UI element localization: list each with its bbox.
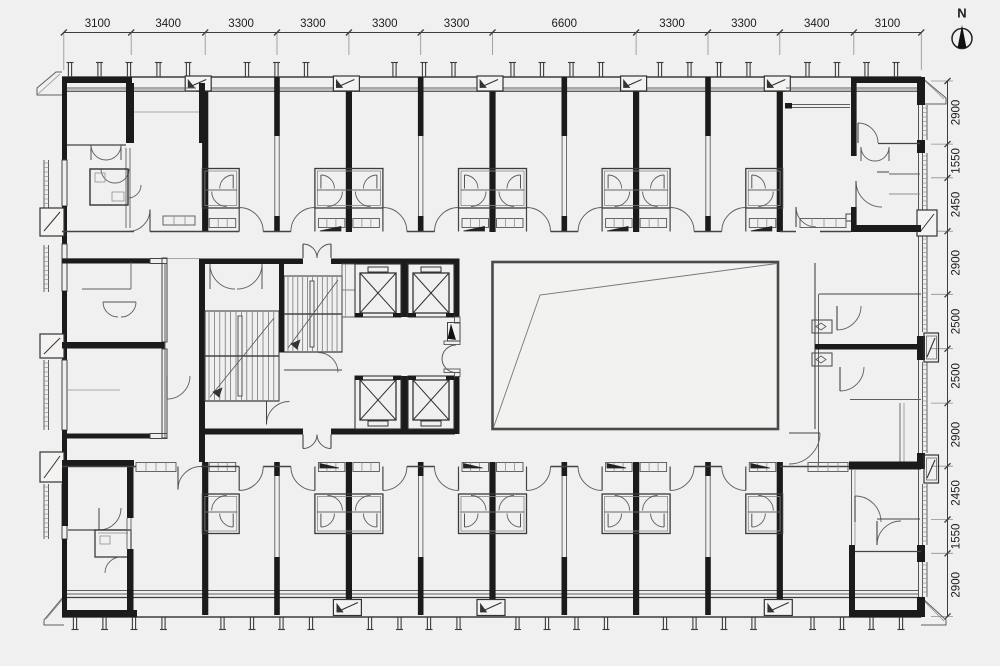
svg-text:2450: 2450 [951,480,963,506]
svg-text:6600: 6600 [552,18,578,30]
svg-text:2900: 2900 [951,250,963,276]
svg-text:2900: 2900 [951,572,963,598]
svg-text:2900: 2900 [951,422,963,448]
svg-text:3300: 3300 [372,18,398,30]
svg-text:2500: 2500 [951,309,963,335]
svg-text:2900: 2900 [951,100,963,126]
svg-text:3100: 3100 [875,18,901,30]
svg-text:2450: 2450 [951,192,963,218]
svg-text:3100: 3100 [85,18,111,30]
svg-text:3300: 3300 [731,18,757,30]
svg-text:3400: 3400 [155,18,181,30]
svg-text:2500: 2500 [951,363,963,389]
svg-text:1550: 1550 [951,148,963,174]
svg-text:3300: 3300 [228,18,254,30]
svg-text:3300: 3300 [659,18,685,30]
svg-text:3400: 3400 [804,18,830,30]
svg-text:3300: 3300 [444,18,470,30]
svg-text:N: N [957,6,966,21]
svg-text:1550: 1550 [951,524,963,550]
svg-text:3300: 3300 [300,18,326,30]
